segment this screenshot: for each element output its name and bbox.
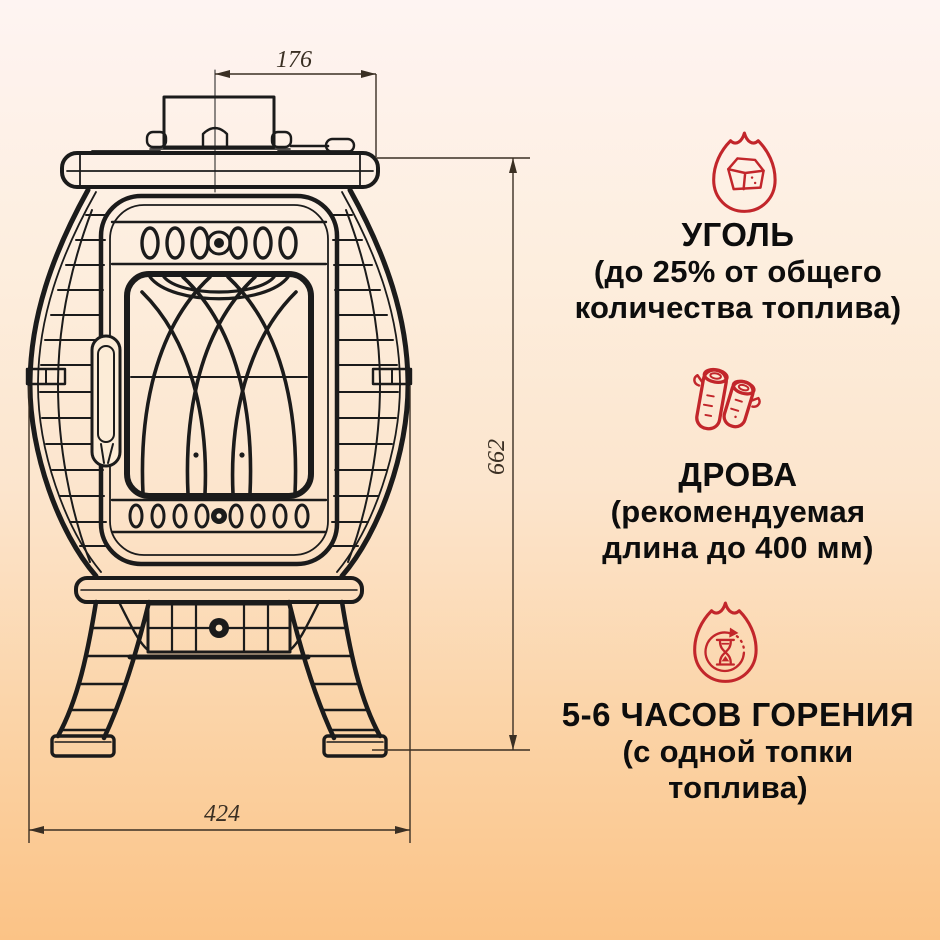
dim-label-424: 424 bbox=[204, 801, 240, 827]
dimension-bottom-width: 424 bbox=[29, 386, 410, 843]
feature-coal-line-2: количества топлива) bbox=[575, 290, 902, 326]
burn-time-flame-hourglass-icon bbox=[687, 600, 764, 686]
bottom-vent-row bbox=[112, 500, 326, 532]
product-infographic: 176 662 424 bbox=[0, 0, 940, 940]
feature-firewood-title: ДРОВА bbox=[678, 456, 797, 494]
feature-burn-time-title: 5-6 ЧАСОВ ГОРЕНИЯ bbox=[562, 696, 914, 734]
dim-label-662: 662 bbox=[484, 439, 510, 475]
right-leg bbox=[289, 602, 386, 756]
brick-band-right bbox=[330, 210, 398, 562]
flue-collar bbox=[147, 97, 354, 152]
dim-label-176: 176 bbox=[276, 47, 312, 73]
door-handle bbox=[92, 336, 120, 466]
ash-drawer bbox=[120, 604, 318, 657]
gothic-window bbox=[127, 274, 311, 496]
feature-firewood: ДРОВА (рекомендуемая длина до 400 мм) bbox=[540, 360, 936, 566]
stove-technical-drawing: 176 662 424 bbox=[0, 0, 540, 880]
logs-icon bbox=[685, 360, 767, 442]
coal-flame-icon bbox=[706, 130, 783, 216]
top-vent-row bbox=[112, 222, 326, 264]
feature-burn-time: 5-6 ЧАСОВ ГОРЕНИЯ (с одной топки топлива… bbox=[540, 600, 936, 806]
dimension-height: 662 bbox=[372, 158, 530, 750]
feature-burn-time-line-1: (с одной топки bbox=[623, 734, 854, 770]
feature-firewood-line-2: длина до 400 мм) bbox=[602, 530, 874, 566]
feature-coal-line-1: (до 25% от общего bbox=[594, 254, 882, 290]
damper-handle bbox=[326, 139, 354, 152]
feature-coal: УГОЛЬ (до 25% от общего количества топли… bbox=[540, 130, 936, 326]
feature-coal-title: УГОЛЬ bbox=[681, 216, 794, 254]
top-plate bbox=[62, 151, 378, 187]
feature-firewood-line-1: (рекомендуемая bbox=[611, 494, 866, 530]
plinth bbox=[76, 578, 362, 602]
left-leg bbox=[52, 602, 149, 756]
feature-burn-time-line-2: топлива) bbox=[668, 770, 808, 806]
